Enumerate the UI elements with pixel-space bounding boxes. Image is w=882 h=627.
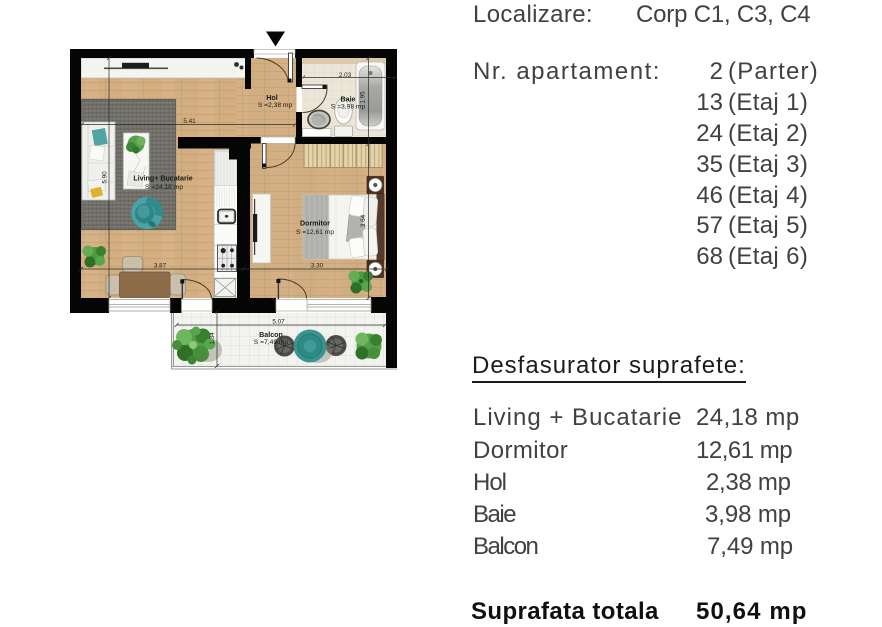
svg-text:S =24,18 mp: S =24,18 mp [145,184,183,191]
svg-text:Living+ Bucatarie: Living+ Bucatarie [133,175,192,183]
svg-text:S =2,38 mp: S =2,38 mp [258,102,293,109]
svg-text:2.03: 2.03 [339,72,352,79]
svg-text:3.30: 3.30 [311,263,324,270]
svg-text:5.41: 5.41 [183,118,196,125]
svg-text:Baie: Baie [341,96,356,104]
svg-text:5.90: 5.90 [102,171,109,184]
svg-text:S =12,61 mp: S =12,61 mp [296,229,334,236]
svg-text:Hol: Hol [266,94,277,102]
svg-text:1.34: 1.34 [209,332,216,345]
svg-text:Dormitor: Dormitor [300,220,330,228]
svg-text:3.64: 3.64 [360,214,367,227]
svg-text:S =3,98 mp: S =3,98 mp [331,104,366,111]
svg-text:S =7,49 mp: S =7,49 mp [254,339,289,346]
svg-text:1.95: 1.95 [360,91,367,104]
svg-text:Balcon: Balcon [259,331,283,339]
svg-text:3.87: 3.87 [154,263,167,270]
svg-text:5.07: 5.07 [272,319,285,326]
